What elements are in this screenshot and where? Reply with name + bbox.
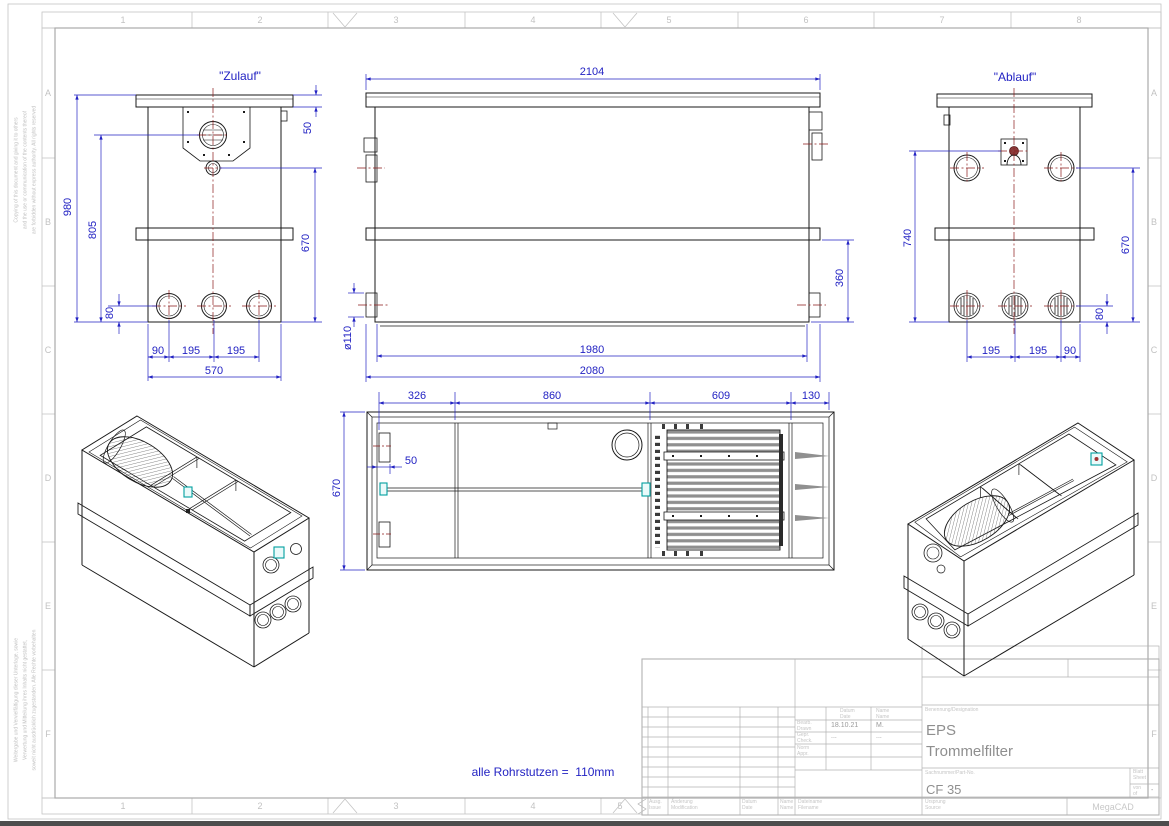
dim-plan-seg1: 326: [408, 390, 426, 402]
designation-value: EPS Trommelfilter: [926, 720, 1013, 762]
dim-rear-pitch1: 195: [982, 345, 1000, 357]
dim-front-band-height: 670: [300, 234, 312, 252]
drawn-label: Bearb. Drawn: [797, 721, 812, 732]
drawing-linework: [0, 0, 1169, 826]
dim-front-port-offset: 80: [104, 307, 116, 319]
grid-col-top-8: 8: [1076, 15, 1081, 25]
dim-front-pitch2: 195: [227, 345, 245, 357]
front-view-centerlines: [152, 88, 276, 334]
rear-view: [935, 94, 1094, 322]
iso-view-right: [904, 423, 1138, 676]
grid-row-right-a: A: [1151, 88, 1157, 98]
grid-col-bottom-2: 2: [257, 801, 262, 811]
grid-row-left-c: C: [45, 345, 52, 355]
grid-col-top-6: 6: [803, 15, 808, 25]
front-view-dimensions: [74, 85, 322, 381]
checked-name-value: ...: [876, 733, 882, 740]
grid-col-top-7: 7: [939, 15, 944, 25]
grid-row-left-d: D: [45, 473, 52, 483]
drawn-name-value: M.: [876, 722, 884, 729]
grid-row-left-a: A: [45, 88, 51, 98]
grid-row-right-b: B: [1151, 217, 1157, 227]
dim-front-height-total: 980: [62, 198, 74, 216]
part-no-label: Sachnummer/Part-No.: [925, 771, 975, 777]
dim-rear-band-height: 670: [1120, 236, 1132, 254]
dim-rear-edge: 90: [1064, 345, 1076, 357]
grid-col-bottom-4: 4: [530, 801, 535, 811]
revision-date-label: Datum Date: [742, 800, 757, 811]
cad-system-label: MegaCAD: [1092, 802, 1134, 812]
drawing-sheet: "Zulauf" "Ablauf" alle Rohrstutzen = 110…: [0, 0, 1169, 826]
sheet-label: Blatt Sheet: [1133, 770, 1146, 781]
part-no-value: CF 35: [926, 782, 961, 797]
name-column-label: Name Name: [876, 709, 889, 720]
dim-plan-seg4: 130: [802, 390, 820, 402]
copyright-notice-de: Weitergabe und Vervielfältigung dieser U…: [13, 630, 40, 771]
grid-col-bottom-5: 5: [617, 801, 622, 811]
dim-front-inlet-height: 805: [87, 221, 99, 239]
filename-label: Dateiname Filename: [798, 800, 822, 811]
rear-view-dimensions: [909, 151, 1140, 362]
grid-col-bottom-1: 1: [120, 801, 125, 811]
rear-view-centerlines: [950, 88, 1078, 334]
grid-col-top-3: 3: [393, 15, 398, 25]
sheet-of-value: -: [1151, 787, 1153, 794]
dim-side-band-height: 360: [834, 269, 846, 287]
side-view-centerlines: [357, 144, 830, 305]
grid-col-bottom-3: 3: [393, 801, 398, 811]
checked-date-value: ...: [831, 733, 837, 740]
approved-label: Norm Appr.: [797, 746, 809, 757]
title-block-grid: [638, 646, 1159, 815]
checked-label: Gepr. Check.: [797, 733, 813, 744]
grid-col-top-2: 2: [257, 15, 262, 25]
date-column-label: Datum Date: [840, 709, 855, 720]
grid-col-top-4: 4: [530, 15, 535, 25]
dim-front-port-edge: 90: [152, 345, 164, 357]
grid-row-right-d: D: [1151, 473, 1158, 483]
dim-side-length-top: 2104: [580, 66, 604, 78]
outlet-label: "Ablauf": [994, 70, 1037, 84]
plan-view: [367, 412, 834, 570]
modification-label: Änderung Modification: [671, 800, 698, 811]
dim-side-body-length: 2080: [580, 365, 604, 377]
grid-col-top-5: 5: [666, 15, 671, 25]
revision-name-label: Name Name: [780, 800, 793, 811]
window-bottom-edge: [0, 821, 1169, 826]
grid-row-right-f: F: [1151, 729, 1157, 739]
dim-side-inner-length: 1980: [580, 344, 604, 356]
source-label: Ursprung Source: [925, 800, 946, 811]
sheet-of-label: von of: [1133, 786, 1141, 797]
pipe-note: alle Rohrstutzen = 110mm: [472, 765, 615, 779]
grid-row-left-e: E: [45, 601, 51, 611]
inlet-label: "Zulauf": [219, 69, 261, 83]
copyright-notice-en: Copying of this document and giving it t…: [13, 106, 40, 234]
issue-label: Ausg. Issue: [649, 800, 662, 811]
front-view: [136, 95, 293, 322]
grid-row-left-f: F: [45, 729, 51, 739]
drawn-date-value: 18.10.21: [831, 722, 858, 729]
designation-label: Benennung/Designation: [925, 708, 978, 714]
dim-front-flange-offset: 50: [302, 122, 314, 134]
dim-plan-seg2: 860: [543, 390, 561, 402]
grid-col-top-1: 1: [120, 15, 125, 25]
dim-rear-pitch2: 195: [1029, 345, 1047, 357]
dim-front-width: 570: [205, 365, 223, 377]
grid-row-left-b: B: [45, 217, 51, 227]
dim-front-pitch1: 195: [182, 345, 200, 357]
dim-rear-outlet-height: 740: [902, 229, 914, 247]
dim-side-pipe-dia: ø110: [342, 326, 354, 350]
iso-view-left: [78, 416, 313, 667]
grid-row-right-c: C: [1151, 345, 1158, 355]
side-view: [364, 93, 822, 326]
dim-plan-width: 670: [331, 479, 343, 497]
dim-plan-offset: 50: [405, 455, 417, 467]
dim-rear-port-offset: 80: [1094, 308, 1106, 320]
grid-row-right-e: E: [1151, 601, 1157, 611]
dim-plan-seg3: 609: [712, 390, 730, 402]
